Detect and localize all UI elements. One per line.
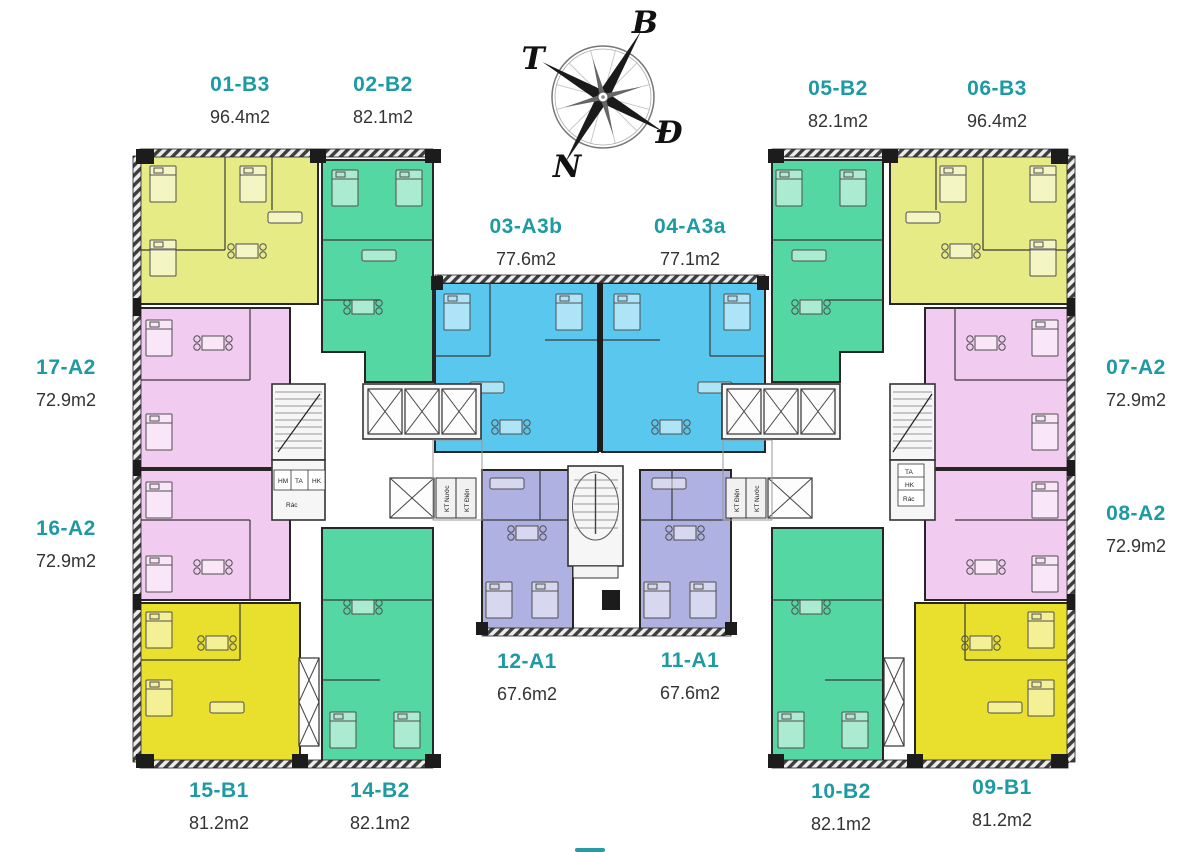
rac-label: Rác <box>286 502 298 509</box>
unit-label-07-a2: 07-A2 72.9m2 <box>1106 356 1166 411</box>
compass-label-north: B <box>631 5 658 41</box>
unit-code: 08-A2 <box>1106 502 1166 526</box>
unit-area: 72.9m2 <box>1106 536 1166 557</box>
unit-code: 06-B3 <box>967 77 1027 101</box>
hk-label: HK <box>905 482 915 489</box>
unit-area: 96.4m2 <box>967 111 1027 132</box>
kt-dien-label: KT Điện <box>464 488 471 512</box>
unit-area: 77.1m2 <box>654 249 726 270</box>
unit-area: 81.2m2 <box>189 813 249 834</box>
unit-area: 72.9m2 <box>36 551 96 572</box>
compass-label-east: Đ <box>654 115 682 151</box>
unit-code: 15-B1 <box>189 779 249 803</box>
unit-label-08-a2: 08-A2 72.9m2 <box>1106 502 1166 557</box>
unit-area: 72.9m2 <box>36 390 96 411</box>
unit-area: 96.4m2 <box>210 107 270 128</box>
floor-plan-page: KT Nước KT Điện KT Điện KT Nước <box>0 0 1200 852</box>
unit-code: 04-A3a <box>654 215 726 239</box>
unit-area: 82.1m2 <box>811 814 871 835</box>
unit-code: 03-A3b <box>489 215 562 239</box>
unit-code: 02-B2 <box>353 73 413 97</box>
stair-annex-left: HM TA HK Rác <box>272 460 325 520</box>
elevator-bank-right <box>722 384 840 439</box>
unit-label-09-b1: 09-B1 81.2m2 <box>972 776 1032 831</box>
hm-label: HM <box>278 478 288 485</box>
unit-label-04-a3a: 04-A3a 77.1m2 <box>654 215 726 270</box>
hk-label: HK <box>312 478 322 485</box>
stairwell-right <box>890 384 935 460</box>
service-elevator-left <box>390 478 434 518</box>
stairwell-left <box>272 384 325 460</box>
kt-dien-label: KT Điện <box>734 488 741 512</box>
unit-area: 81.2m2 <box>972 810 1032 831</box>
elevator-bank-left <box>363 384 481 439</box>
compass-label-south: N <box>552 149 583 185</box>
unit-code: 05-B2 <box>808 77 868 101</box>
ta-label: TA <box>905 469 913 476</box>
unit-label-14-b2: 14-B2 82.1m2 <box>350 779 410 834</box>
ta-label: TA <box>295 478 303 485</box>
unit-area: 82.1m2 <box>353 107 413 128</box>
unit-label-17-a2: 17-A2 72.9m2 <box>36 356 96 411</box>
unit-area: 77.6m2 <box>489 249 562 270</box>
unit-label-02-b2: 02-B2 82.1m2 <box>353 73 413 128</box>
service-elevator-right <box>768 478 812 518</box>
unit-label-10-b2: 10-B2 82.1m2 <box>811 780 871 835</box>
unit-label-03-a3b: 03-A3b 77.6m2 <box>489 215 562 270</box>
kt-nuoc-label: KT Nước <box>754 485 761 512</box>
unit-area: 67.6m2 <box>660 683 720 704</box>
unit-code: 17-A2 <box>36 356 96 380</box>
compass-rose: B Đ N T <box>504 0 701 198</box>
central-stairwell <box>568 466 623 578</box>
unit-code: 14-B2 <box>350 779 410 803</box>
unit-area: 82.1m2 <box>350 813 410 834</box>
unit-label-06-b3: 06-B3 96.4m2 <box>967 77 1027 132</box>
unit-label-15-b1: 15-B1 81.2m2 <box>189 779 249 834</box>
unit-code: 09-B1 <box>972 776 1032 800</box>
rac-label: Rác <box>903 496 915 503</box>
unit-label-01-b3: 01-B3 96.4m2 <box>210 73 270 128</box>
unit-label-05-b2: 05-B2 82.1m2 <box>808 77 868 132</box>
unit-label-11-a1: 11-A1 67.6m2 <box>660 649 720 704</box>
compass-label-west: T <box>521 41 546 77</box>
cropped-text-fragment <box>575 848 605 852</box>
stair-annex-right: TA HK Rác <box>890 460 935 520</box>
unit-area: 67.6m2 <box>497 684 557 705</box>
unit-code: 12-A1 <box>497 650 557 674</box>
unit-code: 11-A1 <box>660 649 720 673</box>
unit-code: 16-A2 <box>36 517 96 541</box>
unit-label-12-a1: 12-A1 67.6m2 <box>497 650 557 705</box>
unit-code: 10-B2 <box>811 780 871 804</box>
unit-code: 07-A2 <box>1106 356 1166 380</box>
unit-area: 72.9m2 <box>1106 390 1166 411</box>
unit-code: 01-B3 <box>210 73 270 97</box>
unit-area: 82.1m2 <box>808 111 868 132</box>
unit-label-16-a2: 16-A2 72.9m2 <box>36 517 96 572</box>
kt-nuoc-label: KT Nước <box>444 485 451 512</box>
